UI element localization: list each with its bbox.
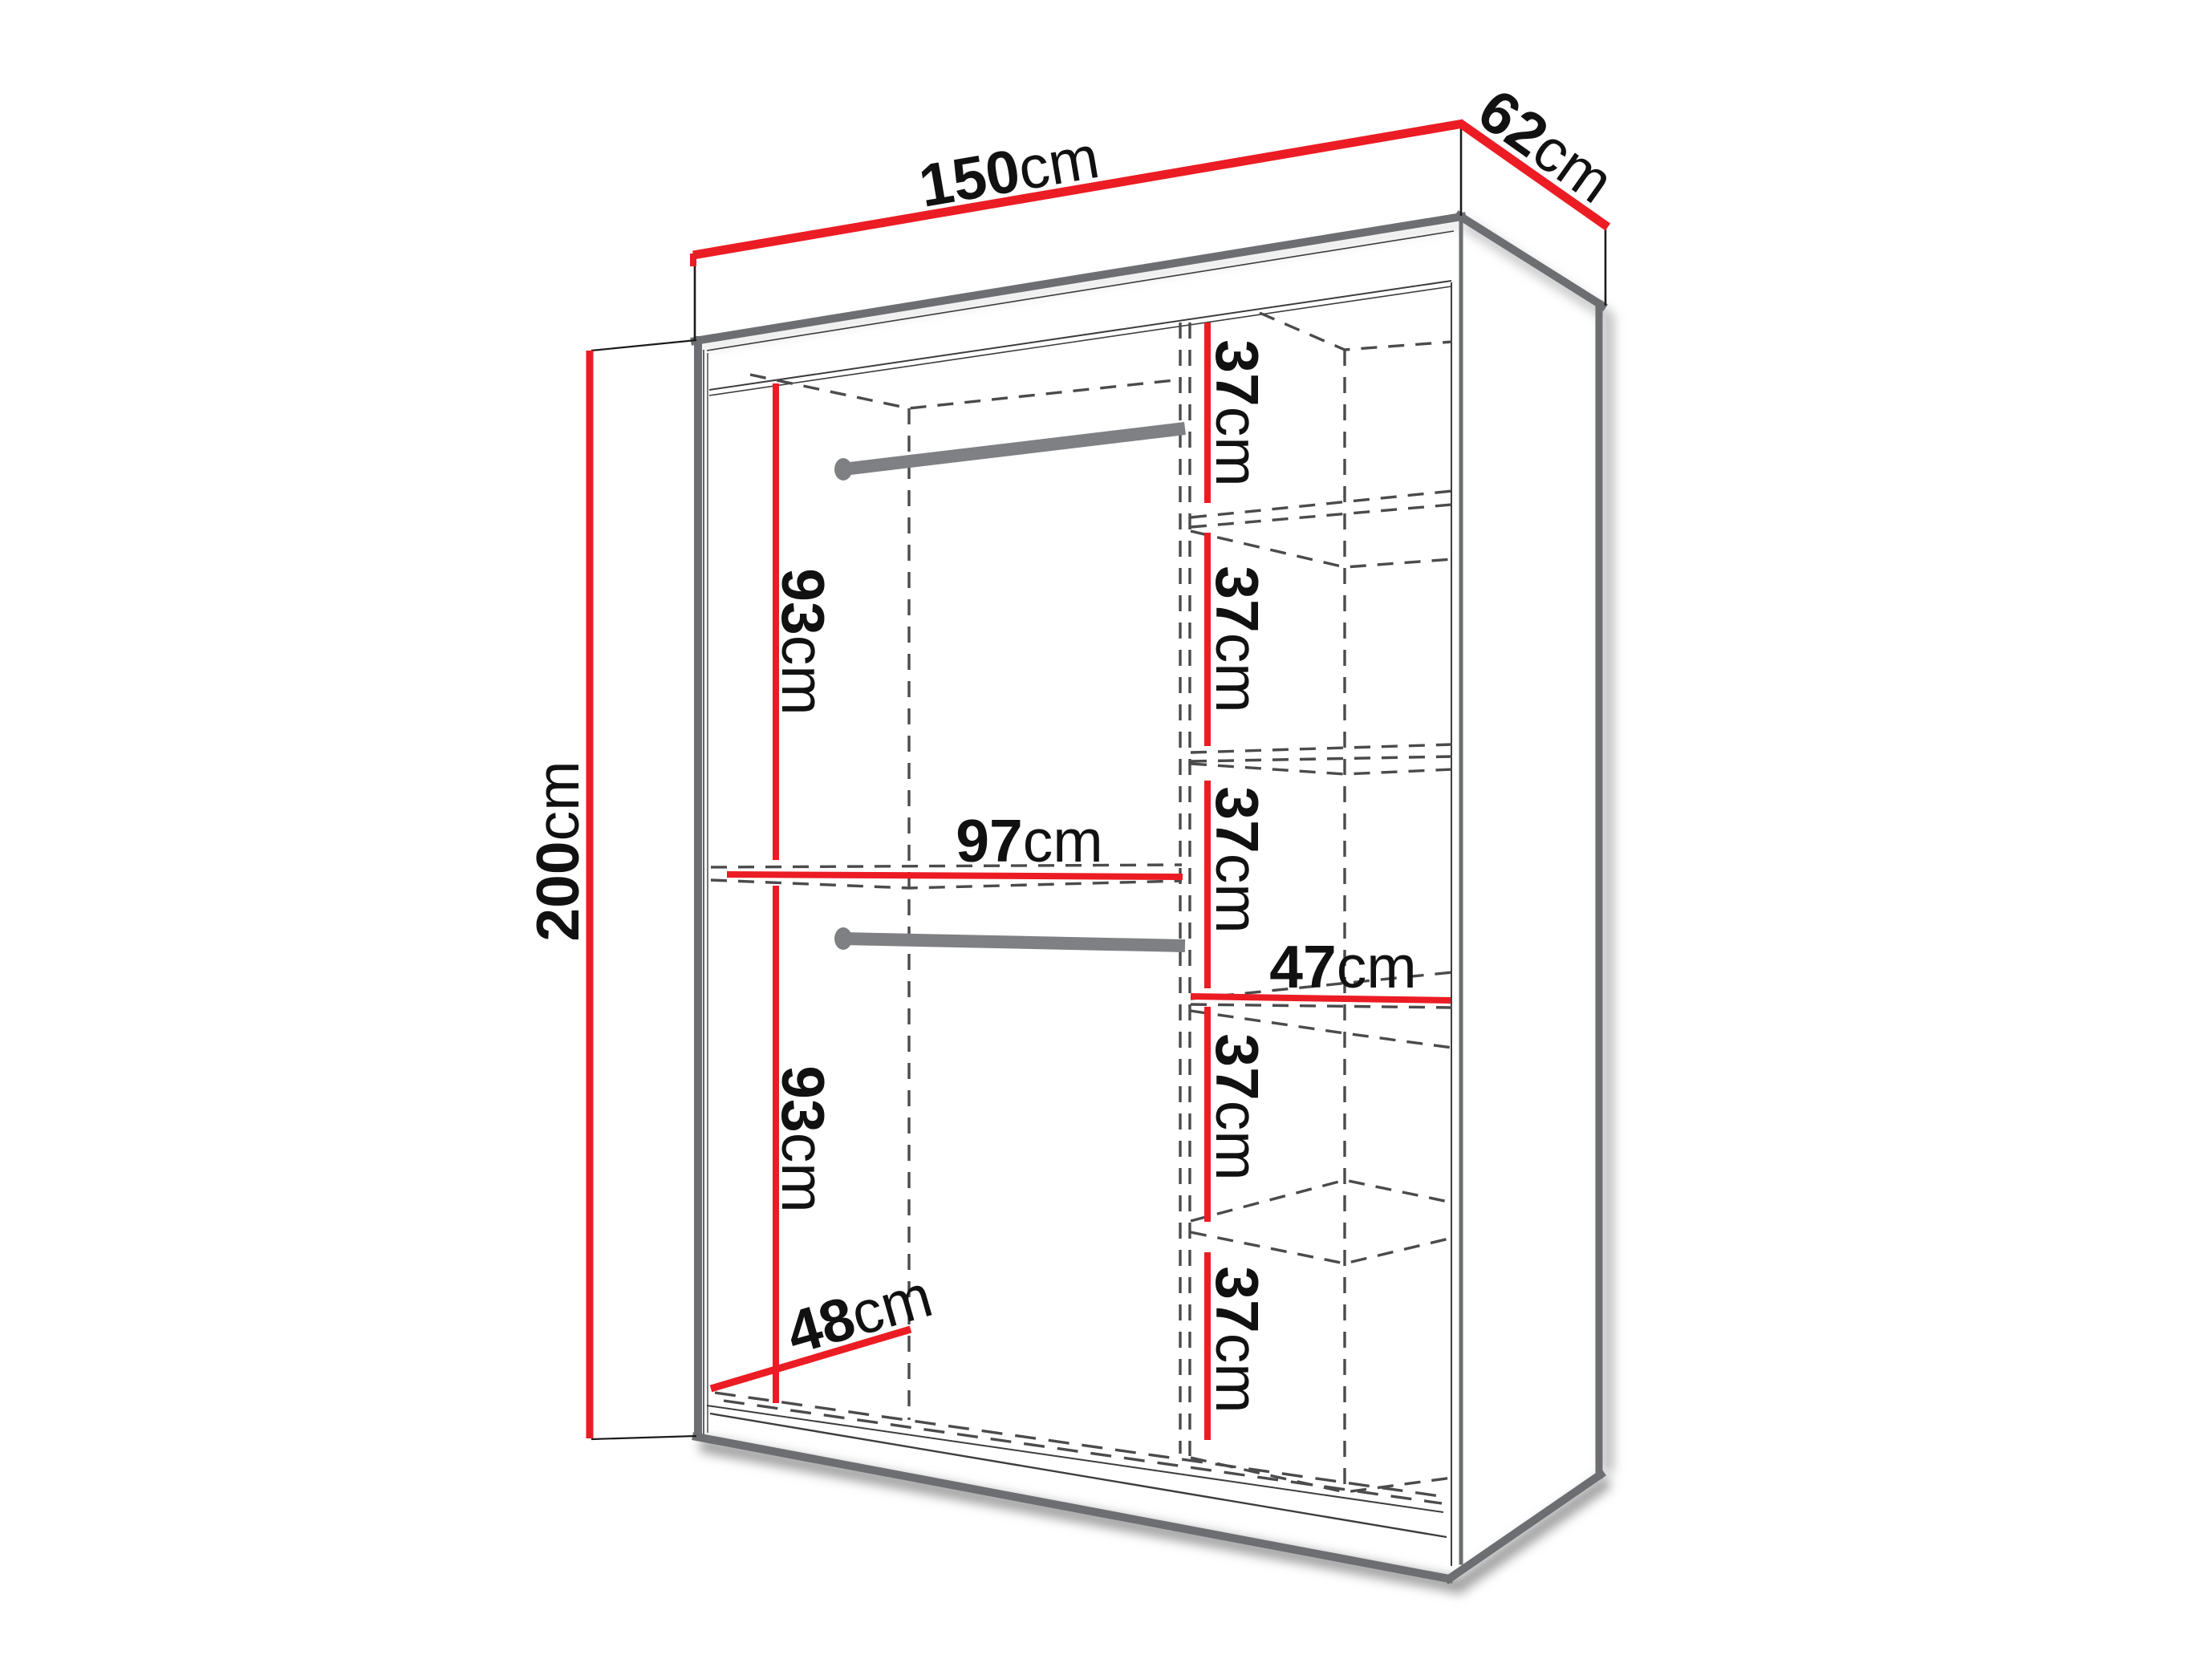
svg-text:37cm: 37cm bbox=[1203, 1033, 1271, 1180]
svg-text:37cm: 37cm bbox=[1203, 1266, 1271, 1413]
svg-text:37cm: 37cm bbox=[1203, 786, 1271, 933]
svg-text:93cm: 93cm bbox=[769, 1065, 837, 1212]
svg-text:93cm: 93cm bbox=[769, 568, 837, 715]
svg-text:97cm: 97cm bbox=[956, 807, 1102, 874]
svg-text:200cm: 200cm bbox=[524, 761, 591, 941]
svg-text:37cm: 37cm bbox=[1203, 566, 1271, 712]
svg-text:37cm: 37cm bbox=[1203, 339, 1271, 486]
svg-text:47cm: 47cm bbox=[1269, 933, 1416, 1000]
